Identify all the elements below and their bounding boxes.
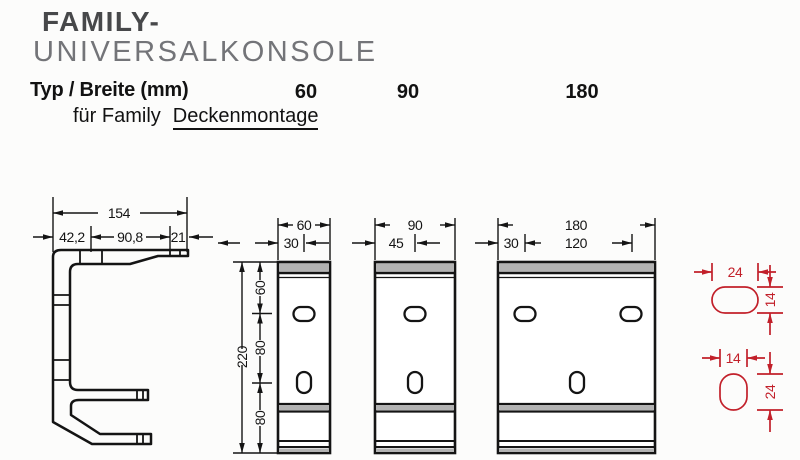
profile-dim-overall: 154	[108, 205, 131, 221]
bracket90-slot-vertical	[408, 372, 422, 393]
bracket60-slot-vertical	[297, 372, 311, 393]
bracket60-slot-horizontal	[294, 307, 315, 321]
bracket60-dim-width: 60	[297, 217, 312, 233]
bracket180-dim-mid: 120	[565, 235, 588, 251]
slot-top-dim-height: 14	[762, 292, 778, 307]
slot-detail-vertical: 14 24	[702, 349, 783, 432]
bracket90-slot-horizontal	[405, 307, 426, 321]
slot-detail-horizontal: 24 14	[694, 263, 783, 335]
bracket180-dim-width: 180	[565, 217, 588, 233]
bracket180-slot-vertical	[570, 372, 584, 393]
slot-detail-horizontal-oval	[712, 287, 758, 313]
bracket180-slot-horizontal-left	[515, 307, 536, 321]
side-profile-drawing: 154 42,2 90,8 21	[33, 197, 213, 444]
technical-drawing: 154 42,2 90,8 21 60 30	[0, 0, 800, 460]
slot-top-dim-width: 24	[728, 264, 743, 280]
bracket-90-drawing: 90 45	[352, 217, 455, 453]
bracket60-dim-seg1: 60	[252, 280, 268, 295]
bracket60-dim-center: 30	[284, 235, 299, 251]
bracket-60-drawing: 60 30 220 60 80 80	[218, 217, 330, 453]
slot-bottom-dim-height: 24	[762, 384, 778, 399]
profile-dim-right: 21	[171, 229, 186, 245]
profile-dim-mid: 90,8	[117, 229, 143, 245]
slot-detail-vertical-oval	[720, 374, 747, 410]
bracket60-dim-height: 220	[234, 345, 250, 368]
bracket180-dim-left: 30	[504, 235, 519, 251]
bracket90-dim-center: 45	[389, 235, 404, 251]
bracket-180-drawing: 180 30 120	[475, 217, 655, 453]
profile-outline	[53, 250, 188, 444]
slot-bottom-dim-width: 14	[726, 350, 741, 366]
profile-dim-left: 42,2	[59, 229, 85, 245]
bracket180-slot-horizontal-right	[621, 307, 642, 321]
bracket60-dim-seg2: 80	[252, 340, 268, 355]
bracket90-dim-width: 90	[408, 217, 423, 233]
bracket60-dim-seg3: 80	[252, 410, 268, 425]
